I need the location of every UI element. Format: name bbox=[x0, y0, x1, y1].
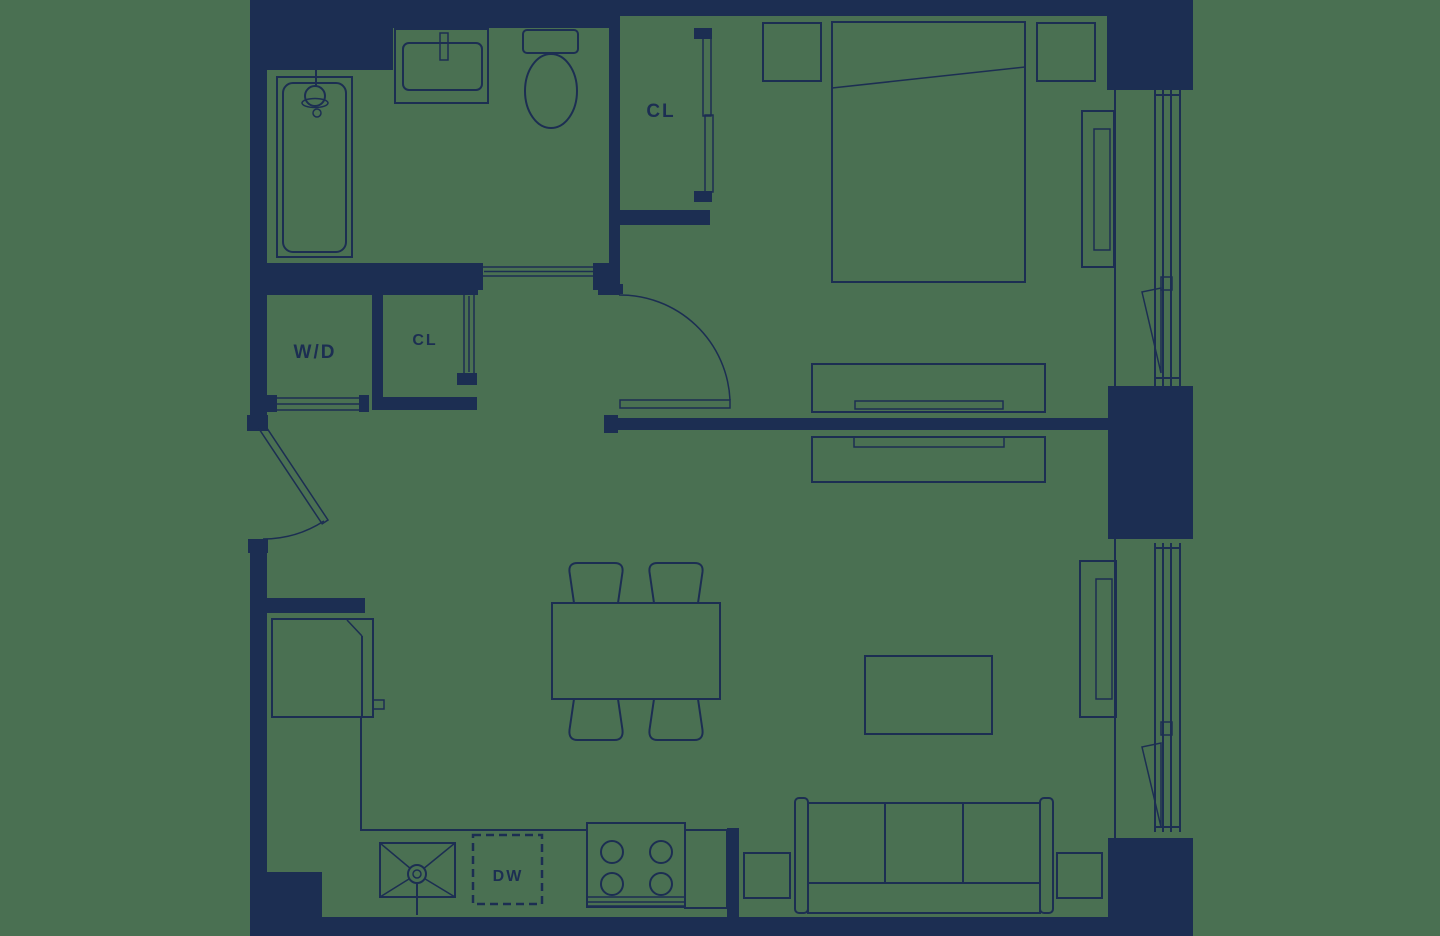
wall-window-pier bbox=[1108, 386, 1193, 539]
wall-left-upper bbox=[250, 70, 267, 415]
wall-entry-jamb-bottom bbox=[248, 539, 268, 553]
wall-bathroom-south bbox=[250, 263, 478, 295]
wall-bedroom-living-divider bbox=[608, 418, 1108, 430]
wall-closet-bottom bbox=[620, 210, 710, 225]
wall-bottom bbox=[322, 917, 1108, 936]
wall-bedroom-door-jamb bbox=[605, 284, 623, 294]
wall-top-bathroom bbox=[393, 0, 620, 28]
wall-entry-jamb-top bbox=[247, 415, 268, 431]
wall-corner-bottom-left bbox=[250, 872, 322, 936]
jamb-hall-closet-bottom bbox=[457, 373, 477, 385]
wall-corner-bottom-right bbox=[1108, 838, 1193, 936]
wall-hall-closet-bottom bbox=[383, 397, 477, 410]
floor-plan: CL W/D CL DW bbox=[0, 0, 1440, 936]
wall-left-lower bbox=[250, 553, 267, 878]
label-bedroom-closet: CL bbox=[646, 101, 675, 122]
wall-corner-top-right bbox=[1107, 0, 1193, 90]
label-washer-dryer: W/D bbox=[294, 342, 337, 363]
wall-kitchen-stub bbox=[267, 598, 365, 613]
label-dishwasher: DW bbox=[493, 868, 524, 885]
jamb-hall-closet-top bbox=[457, 283, 477, 295]
plan-background bbox=[0, 0, 1440, 936]
wall-counter-pier bbox=[727, 828, 739, 917]
wall-top-bedroom bbox=[620, 0, 1107, 16]
wall-top-left-block bbox=[250, 0, 393, 70]
wall-wd-divider bbox=[372, 295, 383, 410]
label-hall-closet: CL bbox=[412, 332, 437, 349]
wall-bedroom-closet bbox=[609, 16, 620, 293]
wall-divider-end-cap bbox=[604, 415, 618, 433]
